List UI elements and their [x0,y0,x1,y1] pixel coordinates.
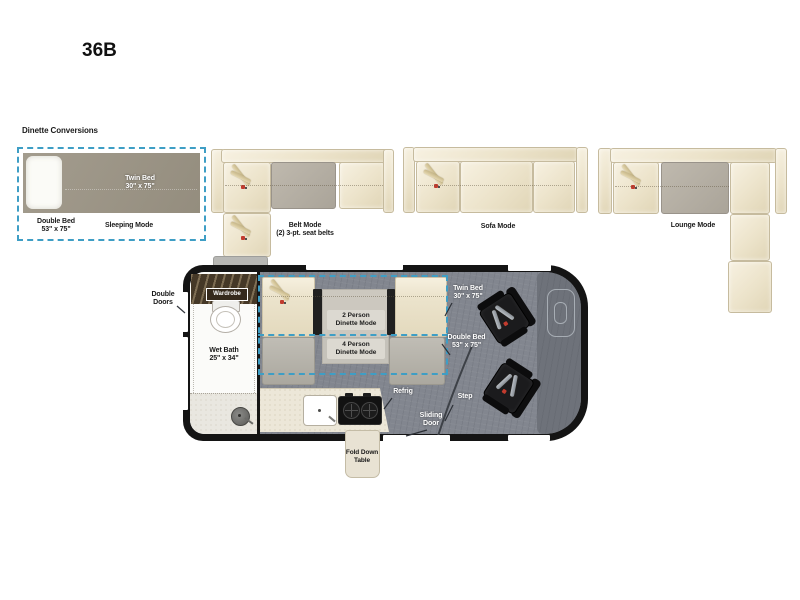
pillow-icon [26,156,62,209]
dinette-conversions-heading: Dinette Conversions [22,126,132,135]
sofa-backrest [610,148,777,163]
sleeping-mode-label: Sleeping Mode [79,222,179,230]
window-opening [306,263,403,270]
refrig-label: Refrig [388,388,418,396]
seat-belt-icon [614,163,658,213]
stove-burner-icon [343,402,360,419]
double-bed-size-label: Double Bed 53" x 75" [27,218,85,235]
wardrobe-label: Wardrobe [206,288,248,301]
sofa-side-bolster [576,147,588,213]
shower-head-icon [231,407,250,426]
step-label: Step [450,393,480,401]
steering-wheel-icon [547,289,575,337]
twin-bed-surface: Twin Bed 30" x 75" [23,153,200,213]
double-bed-floor-label: Double Bed 53" x 75" [443,334,490,351]
double-door-opening [182,292,188,332]
window-opening [508,264,551,271]
sofa-mode-label: Sofa Mode [448,223,548,231]
sink-icon [303,395,337,426]
window-opening [508,435,550,441]
stove-burner-icon [361,402,378,419]
sofa-cushion [460,161,533,213]
stove-icon [338,396,382,425]
seat-belt-icon [224,163,270,212]
belt-seat [223,162,271,213]
belt-seat [416,161,460,213]
belt-mode-label: Belt Mode (2) 3-pt. seat belts [247,222,363,239]
dinette-table-surface [661,162,729,214]
lounge-cushion [728,261,772,313]
double-door-opening [182,337,188,410]
lounge-mode-label: Lounge Mode [643,222,743,230]
sofa-backrest [413,147,578,162]
lounge-cushion [730,162,770,214]
fold-down-table-label: Fold Down Table [342,449,382,464]
sofa-backrest [221,149,390,163]
sofa-side-bolster [775,148,787,214]
twin-bed-floor-label: Twin Bed 30" x 75" [448,285,488,302]
double-bed-outline [258,275,448,375]
belt-seat [613,162,659,214]
lounge-mode-panel: Lounge Mode [597,145,792,320]
model-title: 36B [82,40,117,62]
twin-bed-outline [258,334,448,336]
toilet-icon [216,311,235,328]
double-doors-label: Double Doors [146,291,180,308]
twin-bed-size-label: Twin Bed 30" x 75" [85,175,195,192]
sofa-cushion [533,161,575,213]
stove-knob [363,393,371,397]
sofa-mode-panel: Sofa Mode [400,145,590,240]
seat-belt-icon [417,162,459,212]
floorplan-page: 36B Dinette Conversions Twin Bed 30" x 7… [0,0,800,600]
belt-mode-panel: Belt Mode (2) 3-pt. seat belts [205,145,400,260]
stove-knob [345,393,353,397]
sliding-door-label: Sliding Door [413,412,449,429]
sleeping-mode-panel: Twin Bed 30" x 75" Double Bed 53" x 75" … [17,147,206,241]
sofa-side-bolster [383,149,394,213]
sliding-door-opening [383,435,450,442]
wet-bath-label: Wet Bath 25" x 34" [196,347,252,364]
